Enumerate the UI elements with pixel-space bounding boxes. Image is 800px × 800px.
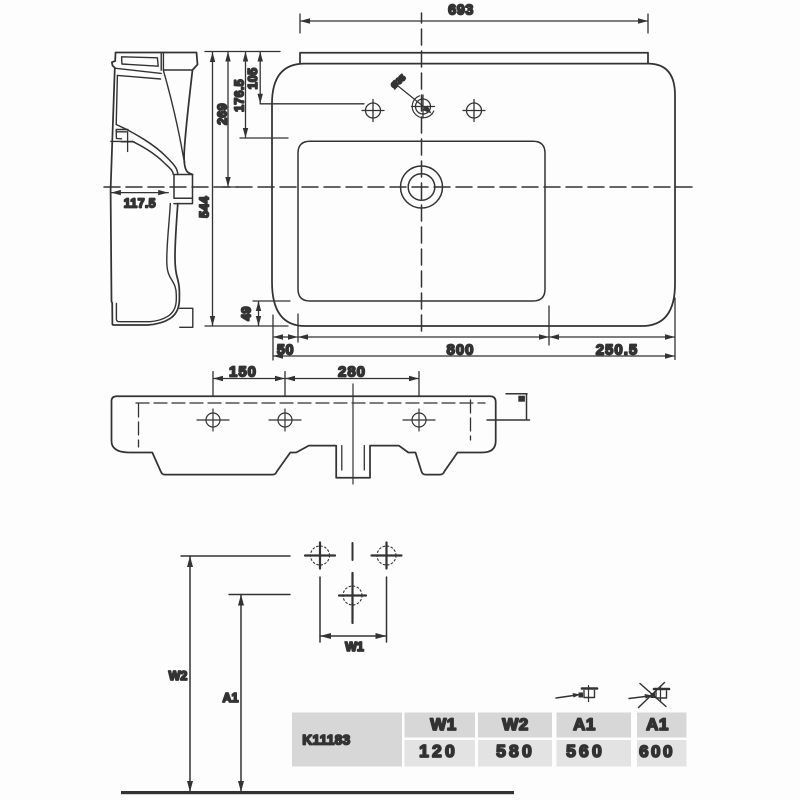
svg-text:W1: W1 [430,715,457,734]
svg-text:580: 580 [496,741,535,761]
svg-text:A1: A1 [573,715,596,734]
svg-text:693: 693 [448,3,474,19]
svg-text:176.5: 176.5 [232,79,246,112]
svg-text:269: 269 [216,103,230,125]
svg-text:K11183: K11183 [302,733,350,748]
svg-text:117.5: 117.5 [124,197,156,211]
svg-text:W2: W2 [502,715,529,734]
svg-text:250.5: 250.5 [596,342,639,359]
svg-text:Ø35: Ø35 [389,72,408,90]
svg-text:560: 560 [566,741,605,761]
svg-text:49: 49 [240,306,254,321]
svg-text:280: 280 [338,364,366,381]
svg-text:150: 150 [229,364,257,381]
svg-text:544: 544 [198,196,212,218]
svg-text:800: 800 [446,342,474,359]
svg-text:120: 120 [419,741,458,761]
svg-text:W2: W2 [169,669,188,683]
svg-text:W1: W1 [345,640,364,654]
svg-text:A1: A1 [646,715,669,734]
svg-text:A1: A1 [223,691,239,705]
svg-text:600: 600 [639,742,675,761]
svg-text:105: 105 [246,68,260,90]
svg-text:50: 50 [277,343,294,359]
